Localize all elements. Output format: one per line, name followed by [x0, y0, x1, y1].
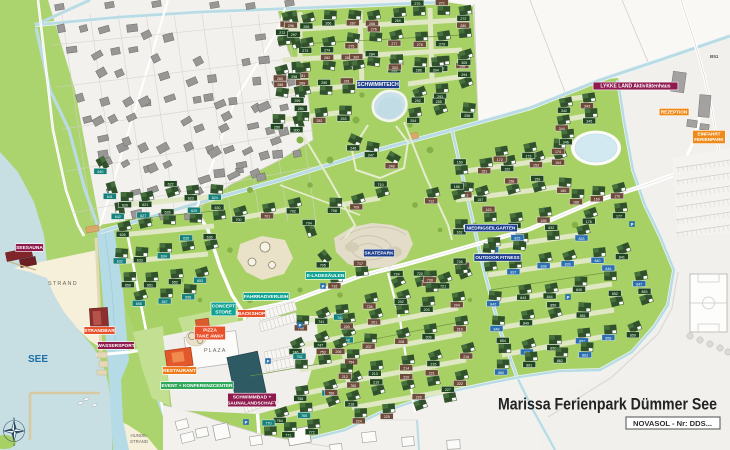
svg-text:708: 708: [331, 209, 337, 213]
svg-text:650: 650: [125, 284, 131, 288]
svg-text:286: 286: [416, 69, 422, 73]
svg-text:226: 226: [416, 395, 422, 399]
svg-text:169: 169: [594, 198, 600, 202]
svg-text:219: 219: [373, 381, 379, 385]
svg-text:728: 728: [367, 305, 373, 309]
svg-text:305: 305: [461, 61, 467, 65]
svg-text:SCHWIMMBAD +: SCHWIMMBAD +: [233, 394, 272, 400]
svg-text:859: 859: [630, 334, 636, 338]
svg-text:SAUNALANDSCHAFT: SAUNALANDSCHAFT: [227, 400, 277, 406]
svg-text:SCHWIMMTEICH: SCHWIMMTEICH: [357, 82, 399, 88]
svg-text:289: 289: [299, 81, 305, 85]
svg-text:700: 700: [236, 218, 242, 222]
svg-text:657: 657: [162, 300, 168, 304]
svg-text:272: 272: [460, 17, 466, 21]
svg-text:717: 717: [357, 262, 363, 266]
svg-text:851: 851: [580, 314, 586, 318]
svg-text:766: 766: [328, 391, 334, 395]
svg-text:220: 220: [403, 376, 409, 380]
svg-text:742: 742: [337, 316, 343, 320]
svg-text:158: 158: [508, 180, 514, 184]
svg-text:758: 758: [297, 397, 303, 401]
svg-text:EVENT + KONFERENZCENTER: EVENT + KONFERENZCENTER: [161, 383, 233, 389]
svg-text:151: 151: [481, 170, 487, 174]
svg-text:621: 621: [142, 203, 148, 207]
svg-text:299: 299: [294, 99, 300, 103]
svg-text:276: 276: [371, 28, 377, 32]
svg-text:NIEDRIGSEILGARTEN: NIEDRIGSEILGARTEN: [467, 225, 516, 230]
svg-text:268: 268: [369, 22, 375, 26]
svg-text:174: 174: [555, 150, 561, 154]
svg-text:825: 825: [514, 236, 520, 240]
svg-text:292: 292: [415, 99, 421, 103]
svg-text:253: 253: [341, 117, 347, 121]
svg-text:213: 213: [372, 372, 378, 376]
svg-text:642: 642: [115, 215, 121, 219]
svg-text:298: 298: [291, 75, 297, 79]
svg-text:854: 854: [500, 339, 506, 343]
svg-text:848: 848: [494, 327, 500, 331]
svg-text:852: 852: [612, 292, 618, 296]
svg-text:159: 159: [534, 177, 540, 181]
svg-text:832: 832: [548, 226, 554, 230]
svg-text:726: 726: [457, 260, 463, 264]
svg-text:FERIENPARK: FERIENPARK: [694, 137, 724, 142]
svg-text:225: 225: [384, 415, 390, 419]
svg-text:294: 294: [461, 73, 467, 77]
svg-text:P: P: [245, 420, 248, 425]
svg-text:290: 290: [321, 81, 327, 85]
svg-text:247: 247: [368, 153, 374, 157]
svg-text:280: 280: [277, 77, 283, 81]
svg-text:200: 200: [344, 325, 350, 329]
svg-text:WASSERSPORT: WASSERSPORT: [97, 343, 134, 349]
svg-text:165: 165: [541, 219, 547, 223]
svg-text:772: 772: [309, 431, 315, 435]
svg-text:752: 752: [297, 355, 303, 359]
svg-text:842: 842: [490, 302, 496, 306]
svg-text:658: 658: [185, 296, 191, 300]
svg-text:HUNDE-: HUNDE-: [130, 433, 148, 438]
svg-text:764: 764: [277, 419, 283, 423]
svg-text:STRANDBAR: STRANDBAR: [84, 328, 115, 334]
svg-text:157: 157: [477, 198, 483, 202]
svg-text:760: 760: [350, 384, 356, 388]
svg-text:P: P: [267, 359, 270, 364]
svg-text:275: 275: [348, 45, 354, 49]
svg-text:172: 172: [497, 158, 503, 162]
svg-text:861: 861: [526, 363, 532, 367]
svg-text:652: 652: [172, 280, 178, 284]
svg-text:CONCEPT: CONCEPT: [212, 303, 236, 309]
svg-text:346: 346: [563, 141, 569, 145]
svg-text:207: 207: [366, 345, 372, 349]
svg-text:254: 254: [410, 119, 416, 123]
svg-text:270: 270: [414, 2, 420, 6]
svg-text:209: 209: [426, 335, 432, 339]
svg-text:843: 843: [520, 296, 526, 300]
svg-text:269: 269: [395, 19, 401, 23]
svg-text:222: 222: [457, 382, 463, 386]
svg-text:838: 838: [541, 264, 547, 268]
svg-text:656: 656: [136, 302, 142, 306]
svg-text:P: P: [567, 295, 570, 300]
svg-text:REZEPTION: REZEPTION: [661, 109, 688, 114]
svg-text:B51: B51: [710, 54, 719, 59]
svg-text:252: 252: [316, 119, 322, 123]
svg-text:771: 771: [285, 434, 291, 438]
svg-text:227: 227: [445, 388, 451, 392]
svg-text:221: 221: [429, 372, 435, 376]
svg-text:Marissa Ferienpark Dümmer See: Marissa Ferienpark Dümmer See: [498, 396, 717, 414]
svg-text:847: 847: [636, 282, 642, 286]
svg-text:266: 266: [325, 22, 331, 26]
svg-text:702: 702: [290, 210, 296, 214]
svg-text:833: 833: [579, 237, 585, 241]
svg-text:267: 267: [350, 22, 356, 26]
svg-text:629: 629: [191, 209, 197, 213]
svg-text:741: 741: [318, 320, 324, 324]
svg-text:214: 214: [403, 367, 409, 371]
svg-text:845: 845: [576, 288, 582, 292]
svg-text:849: 849: [523, 322, 529, 326]
svg-text:632: 632: [117, 260, 123, 264]
svg-text:288: 288: [277, 83, 283, 87]
svg-text:641: 641: [107, 195, 113, 199]
svg-text:636: 636: [207, 235, 213, 239]
svg-text:297: 297: [291, 33, 297, 37]
svg-text:218: 218: [348, 403, 354, 407]
svg-text:204: 204: [454, 304, 460, 308]
svg-text:248: 248: [389, 165, 395, 169]
svg-text:701: 701: [264, 215, 270, 219]
svg-text:304: 304: [433, 69, 439, 73]
svg-text:626: 626: [120, 233, 126, 237]
svg-text:837: 837: [510, 271, 516, 275]
svg-text:163: 163: [486, 208, 492, 212]
svg-text:162: 162: [457, 231, 463, 235]
svg-text:170: 170: [614, 195, 620, 199]
svg-text:863: 863: [582, 354, 588, 358]
svg-text:753: 753: [320, 350, 326, 354]
svg-text:630: 630: [215, 206, 221, 210]
svg-text:212: 212: [342, 375, 348, 379]
svg-text:256: 256: [464, 114, 470, 118]
svg-text:SEE: SEE: [28, 354, 48, 365]
svg-text:265: 265: [303, 25, 309, 29]
svg-text:201: 201: [371, 321, 377, 325]
svg-text:627: 627: [140, 214, 146, 218]
svg-text:160: 160: [560, 189, 566, 193]
svg-text:150: 150: [457, 161, 463, 165]
svg-text:279: 279: [439, 42, 445, 46]
svg-text:274: 274: [324, 49, 330, 53]
svg-text:255: 255: [436, 100, 442, 104]
svg-text:710: 710: [378, 183, 384, 187]
svg-text:271: 271: [439, 1, 445, 5]
svg-text:RESTAURANT: RESTAURANT: [163, 368, 196, 374]
svg-text:620: 620: [122, 203, 128, 207]
svg-text:844: 844: [547, 295, 553, 299]
svg-text:624: 624: [212, 196, 218, 200]
svg-text:280: 280: [460, 24, 466, 28]
svg-text:278: 278: [417, 43, 423, 47]
svg-text:STORE: STORE: [215, 309, 232, 315]
svg-text:PLAZA: PLAZA: [204, 348, 226, 354]
svg-text:721: 721: [440, 285, 446, 289]
svg-text:OUTDOOR FITNESS: OUTDOOR FITNESS: [475, 255, 519, 260]
svg-text:342: 342: [561, 109, 567, 113]
svg-text:841: 841: [619, 255, 625, 259]
svg-text:173: 173: [525, 154, 531, 158]
svg-text:303: 303: [392, 66, 398, 70]
svg-text:291: 291: [344, 80, 350, 84]
svg-text:343: 343: [584, 105, 590, 109]
svg-text:704: 704: [306, 221, 312, 225]
svg-text:PIZZA: PIZZA: [203, 327, 217, 333]
svg-text:177: 177: [616, 214, 622, 218]
svg-text:LYKKE LAND Aktivitätenhaus: LYKKE LAND Aktivitätenhaus: [600, 84, 670, 90]
svg-text:651: 651: [147, 284, 153, 288]
svg-text:272: 272: [279, 31, 285, 35]
svg-text:210: 210: [457, 328, 463, 332]
svg-text:296: 296: [288, 24, 294, 28]
svg-text:730: 730: [427, 278, 433, 282]
svg-text:152: 152: [504, 167, 510, 171]
svg-text:716: 716: [331, 285, 337, 289]
svg-text:747: 747: [317, 344, 323, 348]
svg-text:765: 765: [301, 414, 307, 418]
svg-text:154: 154: [555, 161, 561, 165]
svg-text:300: 300: [294, 128, 300, 132]
svg-text:623: 623: [188, 197, 194, 201]
svg-text:FAHRRADVERLEIH: FAHRRADVERLEIH: [244, 294, 289, 300]
svg-text:P: P: [299, 323, 302, 328]
svg-text:633: 633: [137, 259, 143, 263]
svg-text:634: 634: [161, 255, 167, 259]
svg-text:EINFAHRT: EINFAHRT: [698, 131, 721, 136]
svg-text:STRAND: STRAND: [48, 281, 78, 287]
svg-text:250: 250: [274, 126, 280, 130]
svg-text:622: 622: [168, 183, 174, 187]
svg-text:284: 284: [369, 52, 375, 56]
svg-text:846: 846: [605, 267, 611, 271]
svg-text:246: 246: [350, 147, 356, 151]
svg-text:224: 224: [356, 420, 362, 424]
svg-text:202: 202: [398, 300, 404, 304]
svg-text:839: 839: [565, 263, 571, 267]
svg-text:E-LADESÄULEN: E-LADESÄULEN: [307, 272, 345, 279]
svg-text:858: 858: [605, 336, 611, 340]
svg-text:635: 635: [183, 237, 189, 241]
svg-text:282: 282: [324, 56, 330, 60]
svg-text:862: 862: [557, 359, 563, 363]
svg-text:770: 770: [266, 422, 272, 426]
svg-text:302: 302: [353, 55, 359, 59]
svg-text:176: 176: [586, 220, 592, 224]
svg-text:153: 153: [533, 163, 539, 167]
svg-text:215: 215: [430, 362, 436, 366]
svg-text:720: 720: [417, 272, 423, 276]
svg-text:STRAND: STRAND: [130, 439, 148, 444]
svg-text:168: 168: [573, 201, 579, 205]
svg-text:856: 856: [550, 346, 556, 350]
svg-text:277: 277: [391, 42, 397, 46]
svg-text:705: 705: [320, 264, 326, 268]
svg-text:SEESAUNA: SEESAUNA: [16, 245, 43, 251]
svg-text:206: 206: [335, 350, 341, 354]
svg-text:156: 156: [454, 185, 460, 189]
svg-text:203: 203: [424, 308, 430, 312]
svg-text:628: 628: [165, 211, 171, 215]
svg-text:BACKSHOP: BACKSHOP: [238, 311, 266, 317]
svg-text:P: P: [322, 284, 325, 289]
svg-text:216: 216: [463, 355, 469, 359]
svg-text:P: P: [631, 222, 634, 227]
svg-text:TAKE AWAY: TAKE AWAY: [196, 333, 224, 339]
svg-text:840: 840: [595, 259, 601, 263]
svg-text:NOVASOL - Nr: DDS...: NOVASOL - Nr: DDS...: [633, 419, 712, 428]
svg-text:709: 709: [353, 206, 359, 210]
svg-text:208: 208: [398, 340, 404, 344]
svg-text:860: 860: [498, 371, 504, 375]
svg-text:SKATEPARK: SKATEPARK: [364, 250, 394, 256]
svg-text:653: 653: [197, 279, 203, 283]
svg-text:853: 853: [642, 290, 648, 294]
svg-text:712: 712: [428, 200, 434, 204]
svg-text:251: 251: [298, 107, 304, 111]
svg-text:724: 724: [394, 272, 400, 276]
svg-text:273: 273: [302, 49, 308, 53]
svg-text:345: 345: [586, 120, 592, 124]
svg-text:640: 640: [97, 170, 103, 174]
svg-text:850: 850: [550, 304, 556, 308]
